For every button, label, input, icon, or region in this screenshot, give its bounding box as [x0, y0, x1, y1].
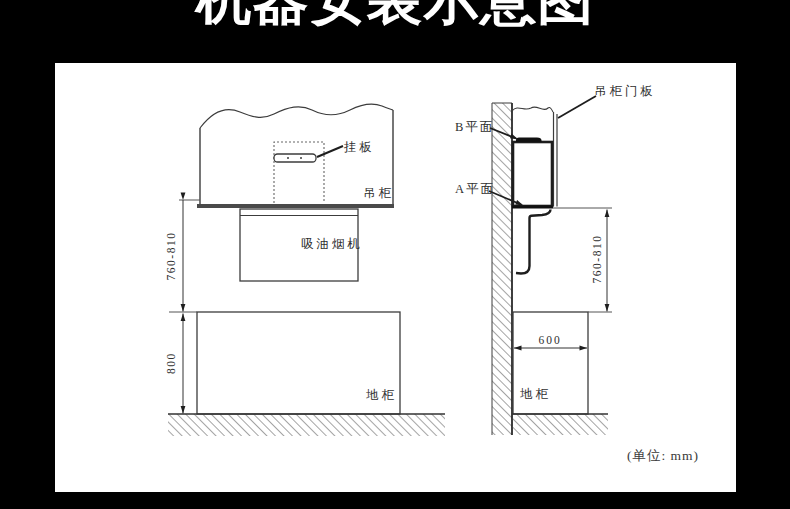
dim-counter-height: 800: [165, 352, 177, 374]
range-hood-side: [513, 142, 552, 206]
dim-hood-height-front: 760-810: [165, 232, 177, 281]
floor-cabinet-label-side: 地柜: [520, 386, 551, 403]
door-panel-leader: [558, 96, 596, 118]
diagram-line-art: [0, 0, 790, 509]
wall-cabinet-label: 吊柜: [363, 185, 394, 202]
side-cabinet-wavy-top: [512, 107, 553, 112]
range-hood-label: 吸油烟机: [301, 236, 363, 253]
floor-cabinet-label-front: 地柜: [366, 387, 397, 404]
plane-a-label: A平面: [455, 181, 495, 198]
floor-hatch-left: [168, 414, 445, 436]
front-view-group: [168, 104, 445, 436]
wall-hatch: [492, 103, 512, 435]
hanging-plate: [274, 154, 316, 162]
wall-cabinet-wavy-top: [200, 104, 393, 128]
plane-b-bracket: [516, 138, 542, 143]
dim-cabinet-depth: 600: [538, 334, 561, 346]
cabinet-door-panel-label: 吊柜门板: [594, 83, 656, 100]
hanging-plate-label: 挂板: [344, 139, 375, 156]
hood-profile: [516, 210, 551, 274]
plane-b-label: B平面: [455, 119, 494, 136]
floor-hatch-right: [512, 414, 608, 435]
installation-diagram-page: { "title": "机器安装示意图", "unit_note": "(单位:…: [0, 0, 790, 509]
hanging-plate-leader: [317, 146, 343, 157]
hood-recess-dashed: [274, 142, 324, 203]
unit-note: (单位: mm): [627, 447, 699, 465]
dim-hood-height-side: 760-810: [591, 235, 603, 284]
